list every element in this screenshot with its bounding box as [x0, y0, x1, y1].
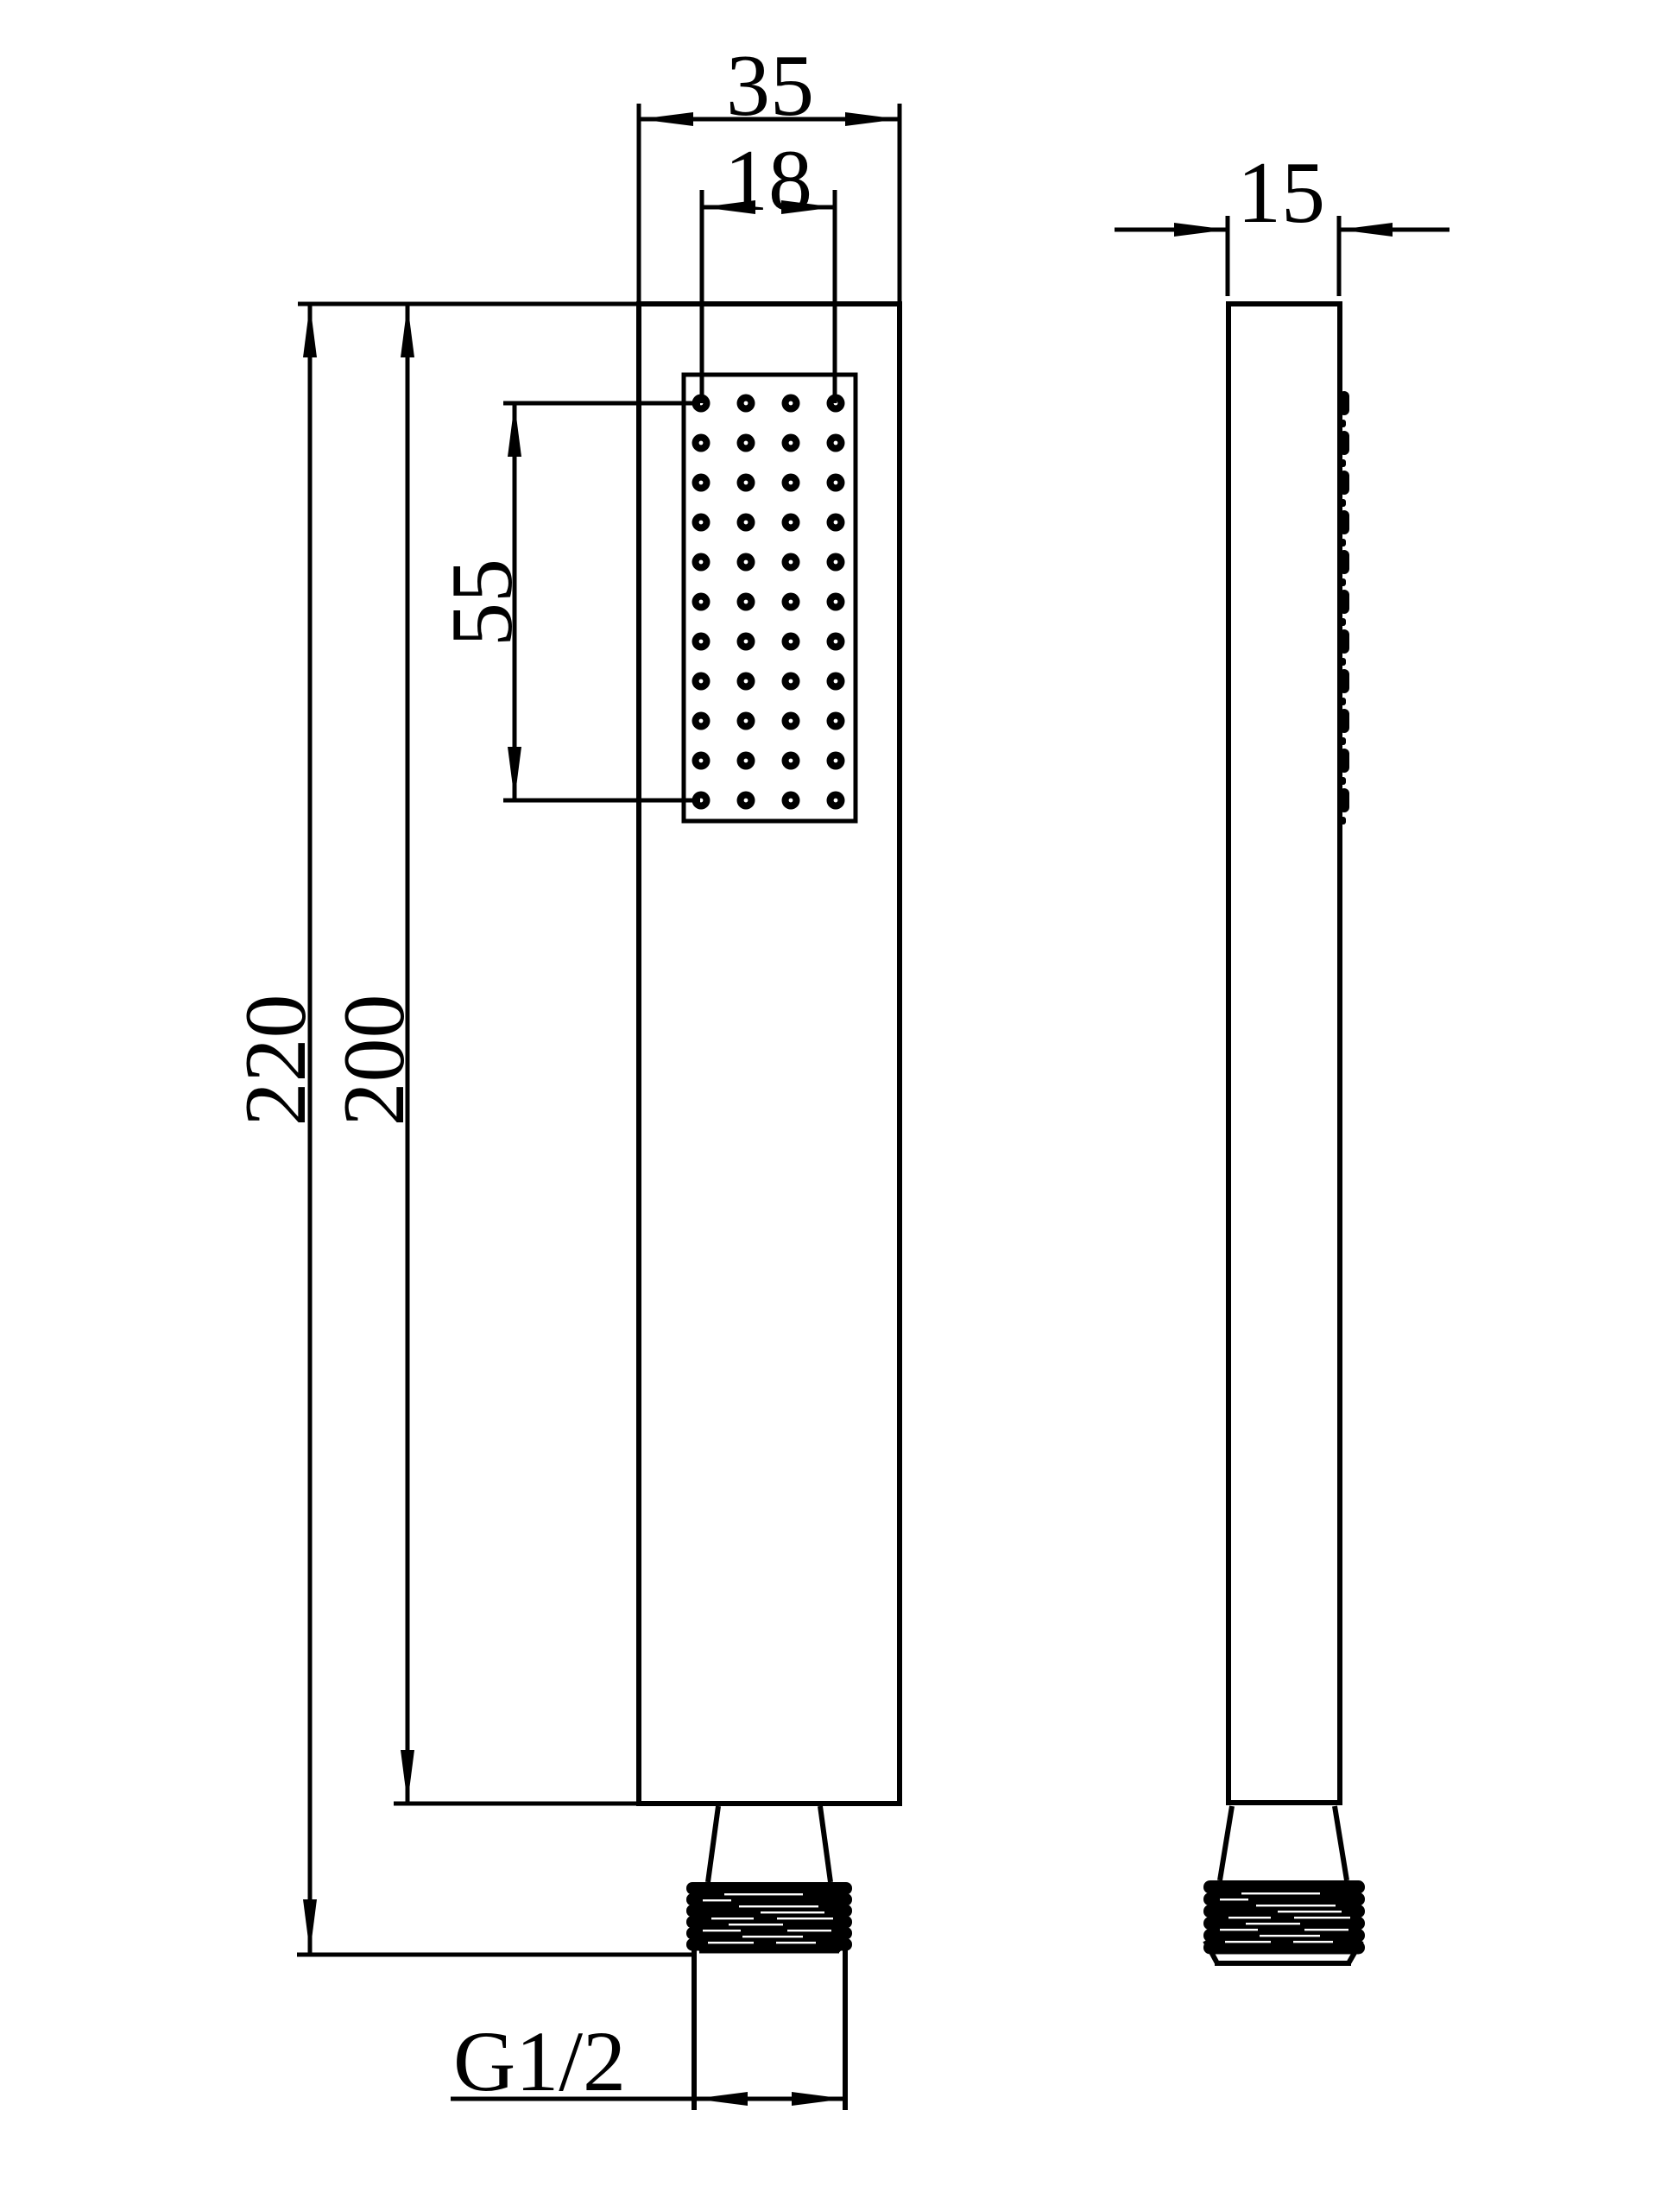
svg-text:200: 200	[325, 995, 423, 1127]
svg-text:35: 35	[726, 37, 814, 135]
svg-text:220: 220	[227, 995, 325, 1127]
svg-text:15: 15	[1237, 144, 1325, 242]
svg-text:55: 55	[433, 559, 531, 647]
svg-text:18: 18	[724, 132, 812, 230]
svg-text:G1/2: G1/2	[453, 2013, 626, 2109]
